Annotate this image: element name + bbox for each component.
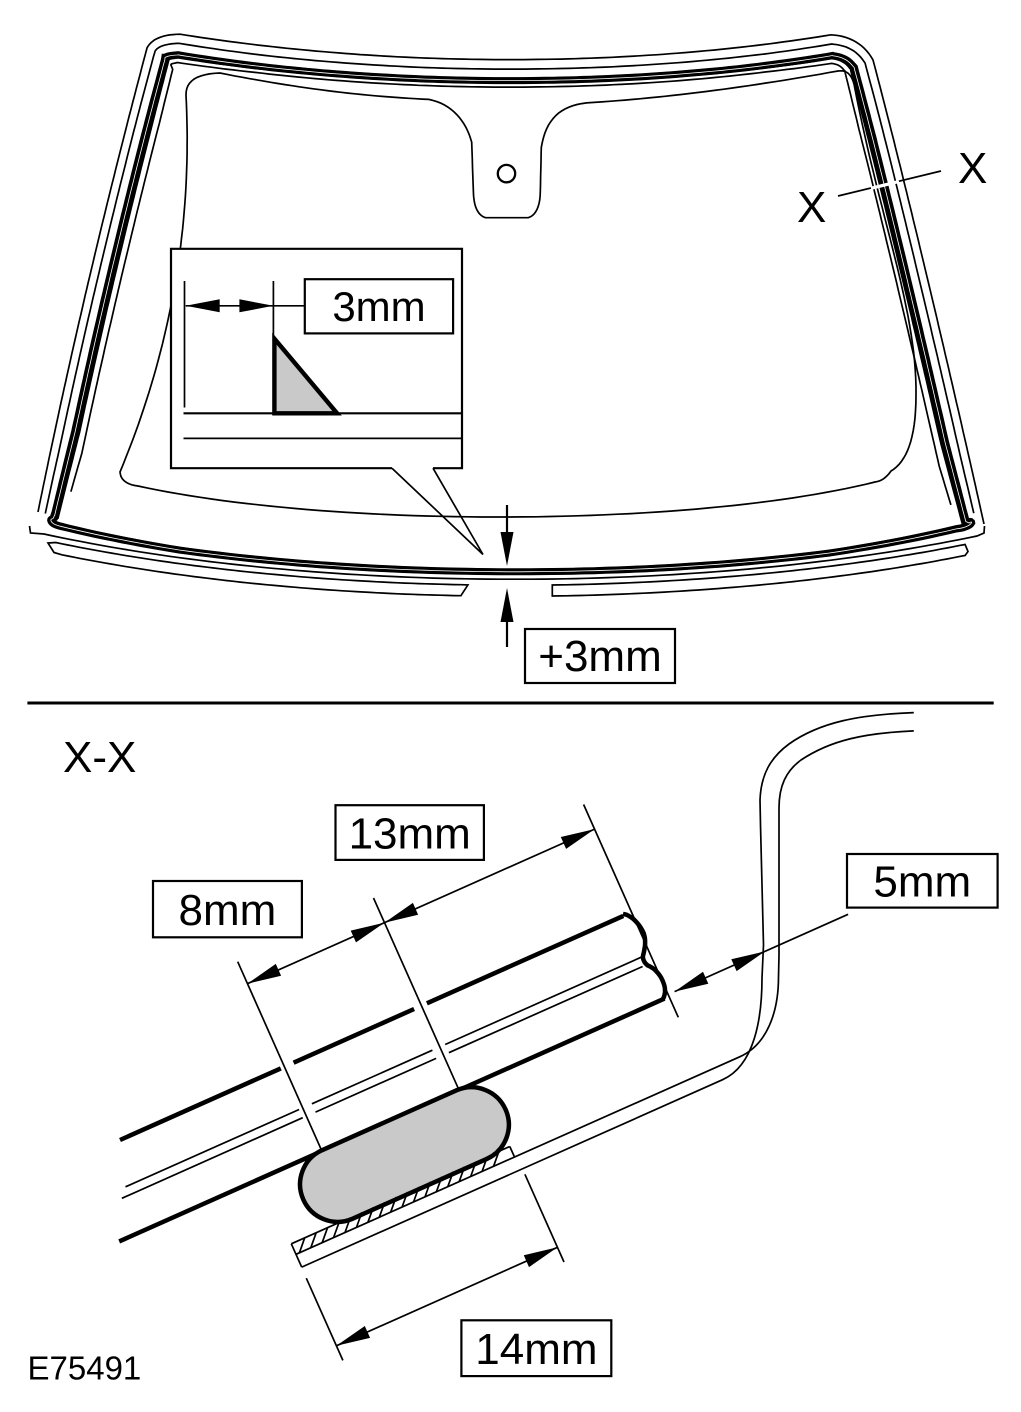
svg-text:X: X	[797, 183, 826, 232]
svg-text:X: X	[958, 144, 987, 193]
svg-text:3mm: 3mm	[332, 283, 425, 330]
svg-text:8mm: 8mm	[179, 886, 277, 935]
svg-text:5mm: 5mm	[873, 858, 971, 907]
svg-text:13mm: 13mm	[349, 809, 471, 858]
svg-text:X-X: X-X	[63, 733, 136, 782]
svg-text:E75491: E75491	[28, 1349, 142, 1386]
svg-text:14mm: 14mm	[475, 1325, 597, 1374]
svg-text:+3mm: +3mm	[538, 632, 661, 681]
